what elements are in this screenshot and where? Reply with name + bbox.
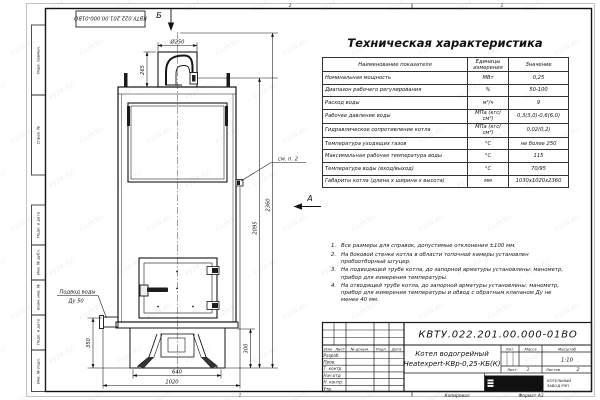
spec-row: Рабочее давление водыМПа (кгс/см²)0,3(3,… [323,109,569,123]
spec-row: Габариты котла (длина х ширина х высота)… [323,175,569,188]
spec-cell: 1030х1020х2360 [509,175,569,188]
spec-row: Диапазон рабочего регулирования%50-100 [323,84,569,97]
spec-cell: Диапазон рабочего регулирования [323,84,468,97]
note-item: 1.Все размеры для справок, допустимые от… [331,243,567,250]
note-item: 2.На боковой стенке котла в области топо… [331,252,567,266]
sign-col: Подп. [376,346,388,351]
spec-header: Единицы измерения [468,58,509,72]
lifting-lug [227,73,231,87]
sign-row: Н. контр. [324,380,344,385]
callout-see-note-2: см. п. 2 [278,157,298,163]
zone-top-left: 2 [289,3,292,8]
spec-cell: МВт [468,72,509,85]
stamp-label: Подп. и дата [36,211,41,238]
spec-cell: Максимальная рабочая температура воды [323,150,468,163]
spec-cell: 9 [509,97,569,110]
dim-total-height: 2360 [266,198,272,212]
dim-base-height-right: 300 [244,343,250,354]
sign-col: Изм [324,346,332,351]
sign-row: Разраб. [324,353,340,358]
product-name-line2: Heatexpert-КВр-0,25-КБ(К) [403,360,500,368]
view-label-b: Б [156,11,162,20]
note-number: 4. [331,283,341,304]
spec-table: Наименование показателя Единицы измерени… [322,57,569,188]
water-inlet-dn: Ду 50 [67,299,84,305]
door-handle [147,288,168,293]
sheet-label: Лист [506,367,517,372]
mass-label: Масса [524,346,537,351]
note-text: На отводящей трубе котла, до запорной ар… [341,283,567,304]
water-inlet-label: Подвод воды [59,290,95,296]
sign-col: Дата [391,346,403,351]
dim-flue-height: 265 [140,64,146,75]
spec-header: Наименование показателя [323,58,468,72]
spec-table-title: Техническая характеристика [322,36,568,50]
zone-bottom: 1 [239,393,242,398]
stamp-label: Инв. № дубл. [36,249,41,275]
dim-outlet-height: 2095 [253,221,259,235]
product-name-line1: Котел водогрейный [415,350,489,358]
note-number: 2. [331,252,341,266]
spec-cell: 0,3(3,0)-0,6(6,0) [509,109,569,123]
note-number: 1. [331,243,341,250]
spec-row: Температура воды (вход/выход)°С70/95 [323,162,569,175]
note-text: На подводящей трубе котла, до запорной а… [341,267,567,281]
sheets-label: Листов [545,367,561,372]
boiler-front-view [100,32,244,374]
note-number: 3. [331,267,341,281]
drawing-sheet: KVZR.RUKVZR.RUKVZR.RUKVZR.RUKVZR.RUKVZR.… [0,0,600,400]
sign-col: № докум. [350,346,370,351]
spec-cell: Температура уходящих газов [323,137,468,150]
doc-number-top-box: КВТУ.022.201.00.000-01ВО [74,11,147,27]
lifting-lug [124,73,128,87]
view-label-a: А [306,194,312,203]
spec-row: Максимальная рабочая температура воды°С1… [323,150,569,163]
kvzr-caption-line1: КОТЕЛЬНЫЙ [547,378,571,383]
sheet-value: 1 [527,367,530,373]
stamp-label: Инв. № подл. [36,358,41,384]
spec-header-row: Наименование показателя Единицы измерени… [323,58,569,72]
spec-cell: Гидравлическое сопротивление котла [323,123,468,137]
spec-cell: МПа (кгс/см²) [468,123,509,137]
spec-row: Гидравлическое сопротивление котлаМПа (к… [323,123,569,137]
spec-cell: МПа (кгс/см²) [468,109,509,123]
dim-overall-depth: 1020 [165,380,179,386]
note-text: Все размеры для справок, допустимые откл… [341,243,516,250]
kvzr-logo: KVZR КОТЕЛЬНЫЙ ЗАВОД РЭП [485,376,572,392]
spec-header: Значение [509,58,569,72]
dim-base-height-left: 350 [86,337,92,348]
spec-cell: Номинальная мощность [323,72,468,85]
spec-cell: 0,02(0,2) [509,123,569,137]
kvzr-caption-line2: ЗАВОД РЭП [547,384,569,388]
spec-cell: не более 250 [509,137,569,150]
spec-cell: Рабочее давление воды [323,109,468,123]
lit-label: Лит. [505,346,515,351]
footer-copy: Копировал [444,393,469,399]
note-text: На боковой стенке котла в области топочн… [341,252,567,266]
sign-row: Пров. [324,360,336,365]
spec-row: Расход водым³/ч9 [323,97,569,110]
sign-row: Нач.отд [324,373,341,378]
doc-number-top-text: КВТУ.022.201.00.000-01ВО [74,15,147,21]
spec-cell: м³/ч [468,97,509,110]
stamp-label: Подп. и дата [36,318,41,345]
scale-value: 1:10 [561,358,574,364]
spec-cell: Температура воды (вход/выход) [323,162,468,175]
spec-cell: °С [468,150,509,163]
spec-row: Номинальная мощностьМВт0,25 [323,72,569,85]
spec-cell: мм [468,175,509,188]
dim-base-width: 640 [172,370,183,376]
sign-row: Утв. [324,386,333,391]
dim-flue-diameter: Ø250 [170,39,186,46]
title-block-text: КВТУ.022.201.00.000-01ВО Котел водогрейн… [324,330,580,392]
stamp-label: Перв. примен. [36,46,41,75]
spec-cell: 70/95 [509,162,569,175]
sign-col: Лист [334,346,345,351]
stamp-label: Справ. № [36,126,41,145]
spec-cell: % [468,84,509,97]
spec-cell: Габариты котла (длина х ширина х высота) [323,175,468,188]
spec-cell: 50-100 [509,84,569,97]
spec-cell: °С [468,137,509,150]
note-item: 4.На отводящей трубе котла, до запорной … [331,283,567,304]
spec-cell: 0,25 [509,72,569,85]
sign-row: Т. контр. [324,366,343,371]
spec-cell: Расход воды [323,97,468,110]
zone-top-right: 1 [501,3,504,8]
spec-cell: 115 [509,150,569,163]
spec-cell: °С [468,162,509,175]
sheets-value: 2 [577,367,580,373]
spec-row: Температура уходящих газов°Сне более 250 [323,137,569,150]
kvzr-logo-text: KVZR [503,380,534,391]
notes-block: 1.Все размеры для справок, допустимые от… [331,243,567,306]
note-item: 3.На подводящей трубе котла, до запорной… [331,267,567,281]
doc-number: КВТУ.022.201.00.000-01ВО [418,330,577,341]
footer-format: Формат А3 [518,393,543,399]
scale-label: Масштаб [558,346,577,351]
stamp-label: Взам. инв. № [36,284,41,310]
